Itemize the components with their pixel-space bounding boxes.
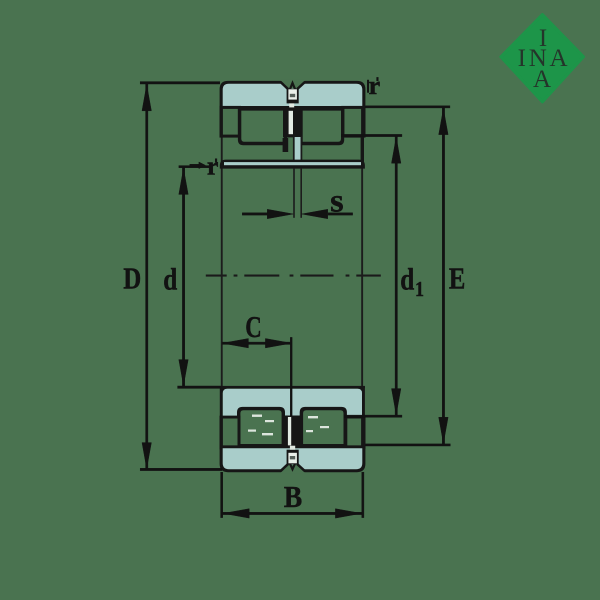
svg-text:r: r	[369, 71, 381, 100]
svg-text:r: r	[207, 152, 219, 181]
svg-text:D: D	[123, 260, 141, 295]
svg-text:C: C	[245, 309, 261, 344]
svg-text:1: 1	[415, 277, 424, 301]
svg-text:B: B	[284, 479, 303, 514]
svg-text:d: d	[400, 262, 414, 297]
svg-text:A: A	[533, 66, 551, 93]
svg-text:s: s	[330, 184, 344, 220]
svg-text:E: E	[449, 260, 466, 295]
svg-text:d: d	[163, 261, 177, 296]
